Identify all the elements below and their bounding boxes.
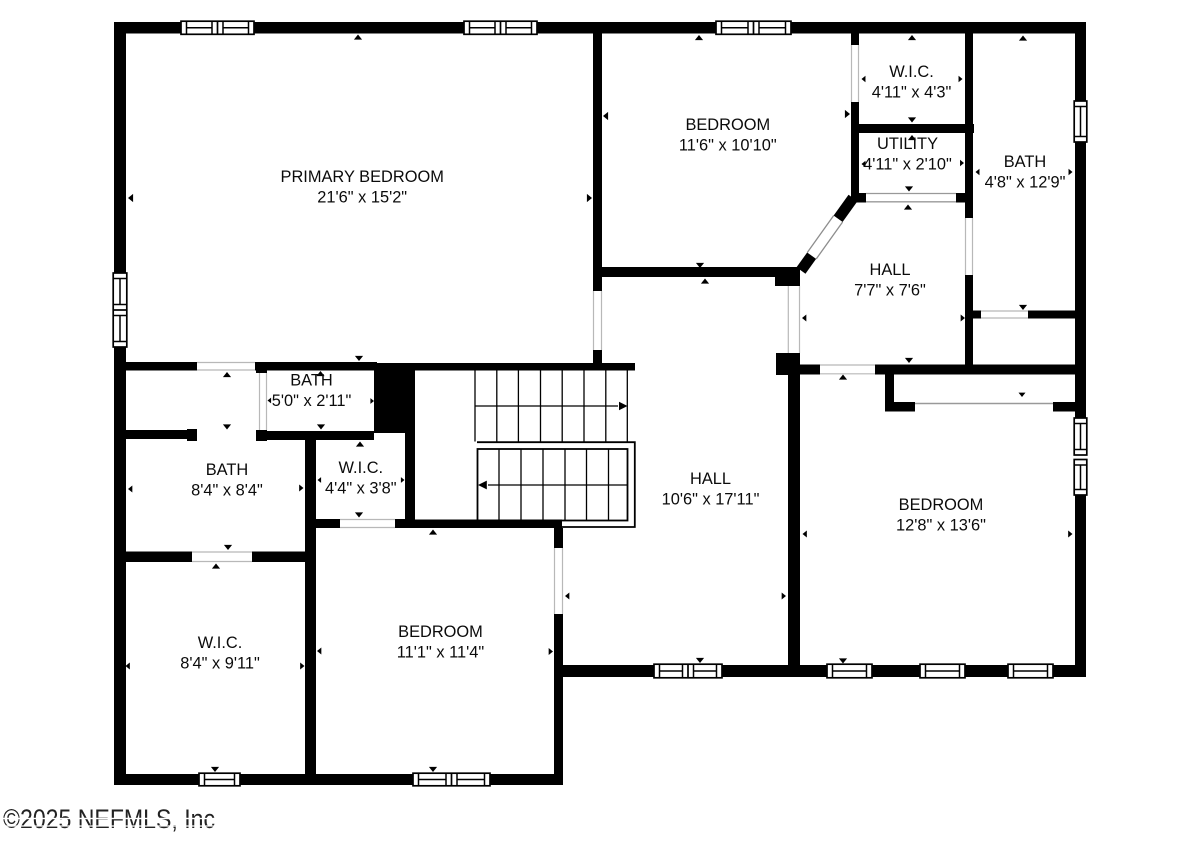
svg-text:8'4" x 8'4": 8'4" x 8'4" (191, 481, 263, 499)
svg-text:8'4" x 9'11": 8'4" x 9'11" (180, 654, 260, 672)
svg-text:5'0" x 2'11": 5'0" x 2'11" (272, 392, 352, 410)
svg-text:7'7" x 7'6": 7'7" x 7'6" (854, 282, 926, 300)
svg-text:PRIMARY BEDROOM: PRIMARY BEDROOM (281, 168, 444, 186)
svg-text:11'1" x 11'4": 11'1" x 11'4" (397, 643, 485, 661)
svg-text:BEDROOM: BEDROOM (398, 623, 483, 641)
svg-text:HALL: HALL (869, 261, 910, 279)
svg-text:W.I.C.: W.I.C. (889, 63, 934, 81)
svg-text:12'8" x 13'6": 12'8" x 13'6" (896, 516, 986, 534)
svg-text:4'4" x 3'8": 4'4" x 3'8" (325, 479, 397, 497)
svg-text:BEDROOM: BEDROOM (899, 496, 984, 514)
svg-text:4'11" x 2'10": 4'11" x 2'10" (863, 155, 952, 173)
svg-text:UTILITY: UTILITY (877, 135, 938, 153)
svg-text:4'11" x 4'3": 4'11" x 4'3" (872, 83, 952, 101)
svg-text:W.I.C.: W.I.C. (338, 459, 383, 477)
svg-text:HALL: HALL (690, 470, 731, 488)
svg-text:11'6" x 10'10": 11'6" x 10'10" (679, 137, 777, 155)
svg-text:BATH: BATH (1004, 153, 1047, 171)
svg-text:BEDROOM: BEDROOM (685, 116, 770, 134)
svg-text:BATH: BATH (206, 461, 249, 479)
svg-text:4'8" x 12'9": 4'8" x 12'9" (985, 174, 1066, 192)
svg-text:21'6" x 15'2": 21'6" x 15'2" (317, 189, 407, 207)
svg-text:BATH: BATH (290, 372, 333, 390)
svg-text:10'6" x 17'11": 10'6" x 17'11" (662, 490, 760, 508)
svg-text:W.I.C.: W.I.C. (198, 634, 243, 652)
